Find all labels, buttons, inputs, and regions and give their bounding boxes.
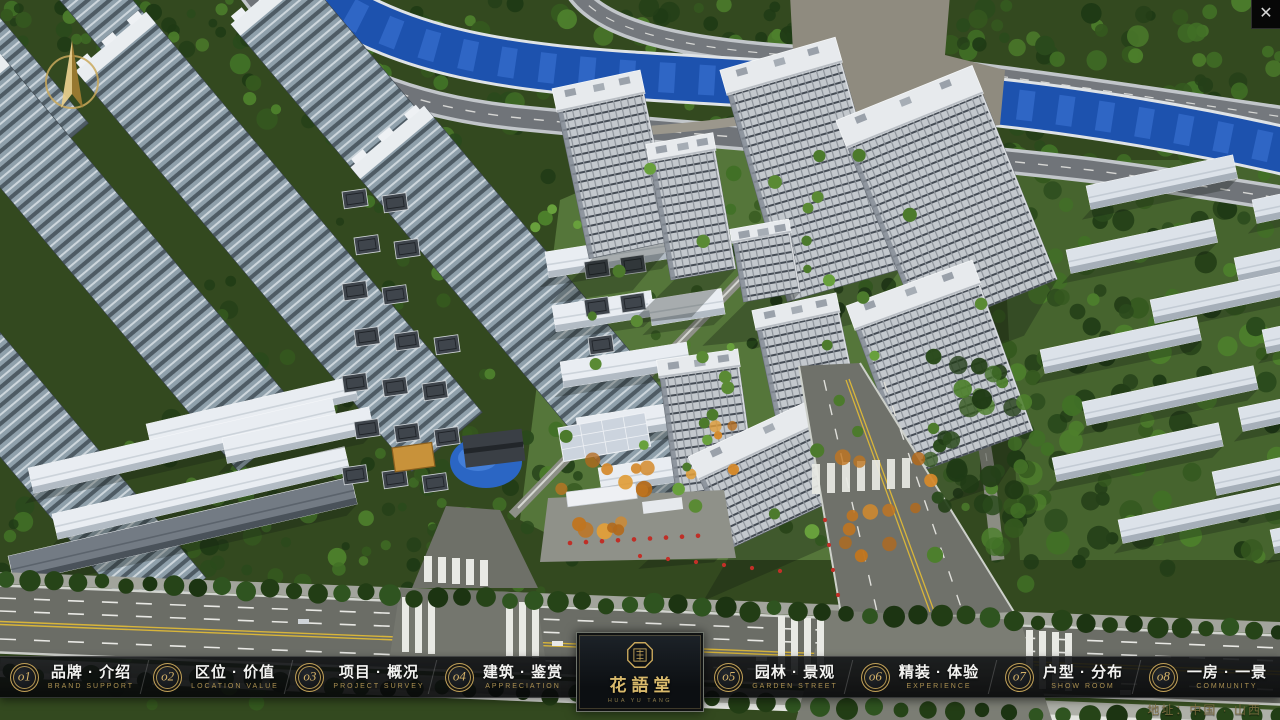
courtyard-villa (394, 331, 420, 351)
menu-item-views[interactable]: o8 一房 · 一景 COMMUNITY (1136, 657, 1280, 697)
courtyard-villa (434, 427, 460, 447)
menu-item-title: 一房 · 一景 (1187, 665, 1267, 680)
brand-tagline: HUA YU TANG (608, 698, 672, 704)
menu-item-number-badge: o3 (295, 663, 324, 692)
menu-item-number-badge: o4 (445, 663, 474, 692)
menu-item-location[interactable]: o2 区位 · 价值 LOCATION VALUE (144, 657, 288, 697)
menu-item-title: 区位 · 价值 (195, 665, 275, 680)
brand-seal-icon (626, 641, 654, 669)
courtyard-villa (620, 293, 646, 313)
menu-item-project[interactable]: o3 项目 · 概况 PROJECT SURVEY (288, 657, 432, 697)
menu-item-interior[interactable]: o6 精装 · 体验 EXPERIENCE (848, 657, 992, 697)
courtyard-villa (382, 377, 408, 397)
courtyard-villa (382, 285, 408, 305)
courtyard-villa (584, 297, 610, 317)
menu-item-floorplan[interactable]: o7 户型 · 分布 SHOW ROOM (992, 657, 1136, 697)
courtyard-villa (354, 419, 380, 439)
courtyard-villa (354, 327, 380, 347)
menu-item-number-badge: o1 (10, 663, 39, 692)
courtyard-villa (434, 335, 460, 355)
menu-item-subtitle: PROJECT SURVEY (333, 683, 424, 690)
menu-item-title: 精装 · 体验 (899, 665, 979, 680)
courtyard-villa (422, 381, 448, 401)
courtyard-villa (342, 281, 368, 301)
logo-panel[interactable]: 花語堂 HUA YU TANG (576, 632, 704, 712)
close-button[interactable]: ✕ (1251, 0, 1280, 29)
menu-item-number-badge: o7 (1005, 663, 1034, 692)
menu-item-title: 户型 · 分布 (1043, 665, 1123, 680)
menu-item-title: 品牌 · 介绍 (51, 665, 131, 680)
courtyard-villa (354, 235, 380, 255)
menu-item-subtitle: EXPERIENCE (906, 683, 971, 690)
courtyard-villa (382, 193, 408, 213)
menu-item-number-badge: o6 (861, 663, 890, 692)
menu-item-number-badge: o2 (153, 663, 182, 692)
menu-item-subtitle: APPRECIATION (485, 683, 561, 690)
menu-group-left: o1 品牌 · 介绍 BRAND SUPPORT o2 区位 · 价值 LOCA… (0, 657, 576, 697)
courtyard-villa (342, 465, 368, 485)
address-text: 地址：中国 · 山西 (1147, 701, 1262, 718)
menu-item-title: 项目 · 概况 (339, 665, 419, 680)
menu-item-subtitle: GARDEN STREET (752, 683, 838, 690)
courtyard-villa (394, 423, 420, 443)
courtyard-villa (342, 189, 368, 209)
menu-item-brand[interactable]: o1 品牌 · 介绍 BRAND SUPPORT (0, 657, 144, 697)
menu-item-subtitle: BRAND SUPPORT (48, 683, 134, 690)
aerial-site-render[interactable] (0, 0, 1280, 720)
menu-item-architecture[interactable]: o4 建筑 · 鉴赏 APPRECIATION (432, 657, 576, 697)
menu-item-number-badge: o8 (1149, 663, 1178, 692)
menu-group-right: o5 园林 · 景观 GARDEN STREET o6 精装 · 体验 EXPE… (704, 657, 1280, 697)
menu-item-subtitle: SHOW ROOM (1051, 683, 1115, 690)
menu-item-subtitle: LOCATION VALUE (191, 683, 279, 690)
menu-item-title: 园林 · 景观 (755, 665, 835, 680)
menu-item-landscape[interactable]: o5 园林 · 景观 GARDEN STREET (704, 657, 848, 697)
courtyard-villa (342, 373, 368, 393)
close-icon: ✕ (1259, 6, 1272, 22)
courtyard-villa (422, 473, 448, 493)
courtyard-villa (588, 335, 614, 355)
menu-item-number-badge: o5 (714, 663, 743, 692)
courtyard-villa (394, 239, 420, 259)
amenity-building (392, 442, 435, 471)
menu-item-subtitle: COMMUNITY (1196, 683, 1257, 690)
menu-item-title: 建筑 · 鉴赏 (483, 665, 563, 680)
brand-name: 花語堂 (605, 671, 676, 696)
presentation-window: ✕ o1 品牌 · 介绍 BRAND SUPPORT o2 区位 · 价值 LO… (0, 0, 1280, 720)
